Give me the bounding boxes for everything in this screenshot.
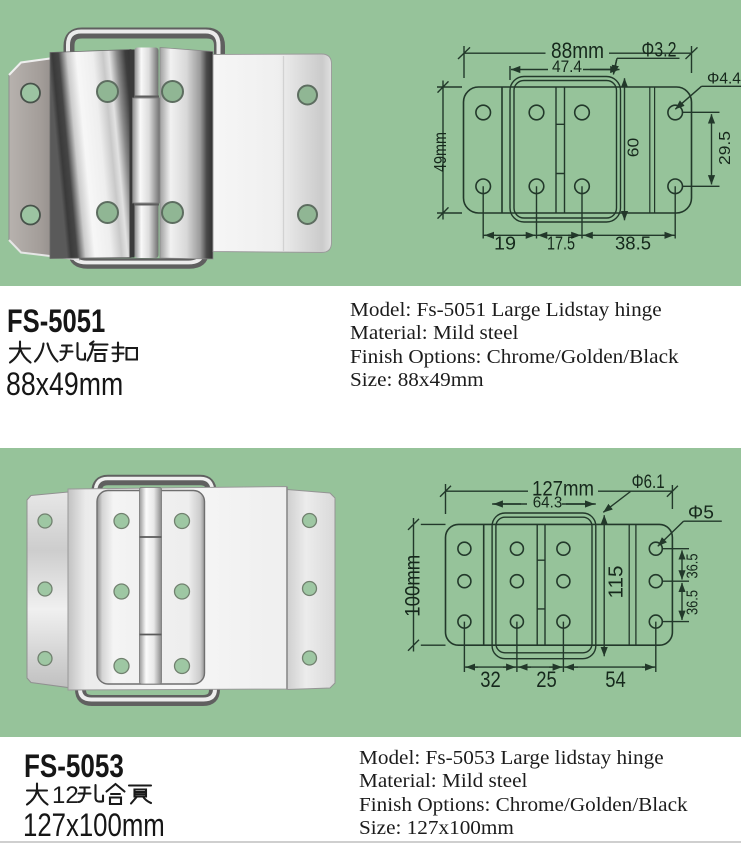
svg-text:47.4: 47.4 bbox=[552, 57, 582, 76]
svg-text:64.3: 64.3 bbox=[533, 495, 563, 512]
svg-text:Φ6.1: Φ6.1 bbox=[632, 471, 665, 493]
svg-text:49mm: 49mm bbox=[430, 132, 450, 172]
svg-text:32: 32 bbox=[480, 667, 501, 692]
svg-text:100mm: 100mm bbox=[402, 555, 425, 617]
svg-text:38.5: 38.5 bbox=[615, 234, 651, 254]
svg-text:19: 19 bbox=[494, 234, 516, 254]
svg-text:60: 60 bbox=[626, 137, 643, 157]
svg-text:29.5: 29.5 bbox=[717, 131, 734, 165]
svg-text:54: 54 bbox=[605, 667, 626, 692]
svg-text:12: 12 bbox=[52, 782, 79, 808]
svg-text:36.5: 36.5 bbox=[685, 590, 702, 615]
svg-text:25: 25 bbox=[536, 667, 557, 692]
svg-text:Φ4.4: Φ4.4 bbox=[707, 71, 741, 88]
svg-text:Φ3.2: Φ3.2 bbox=[642, 39, 677, 62]
svg-text:17.5: 17.5 bbox=[547, 234, 575, 254]
svg-text:36.5: 36.5 bbox=[685, 553, 702, 578]
svg-text:Φ5: Φ5 bbox=[688, 502, 714, 523]
svg-text:115: 115 bbox=[605, 566, 628, 599]
